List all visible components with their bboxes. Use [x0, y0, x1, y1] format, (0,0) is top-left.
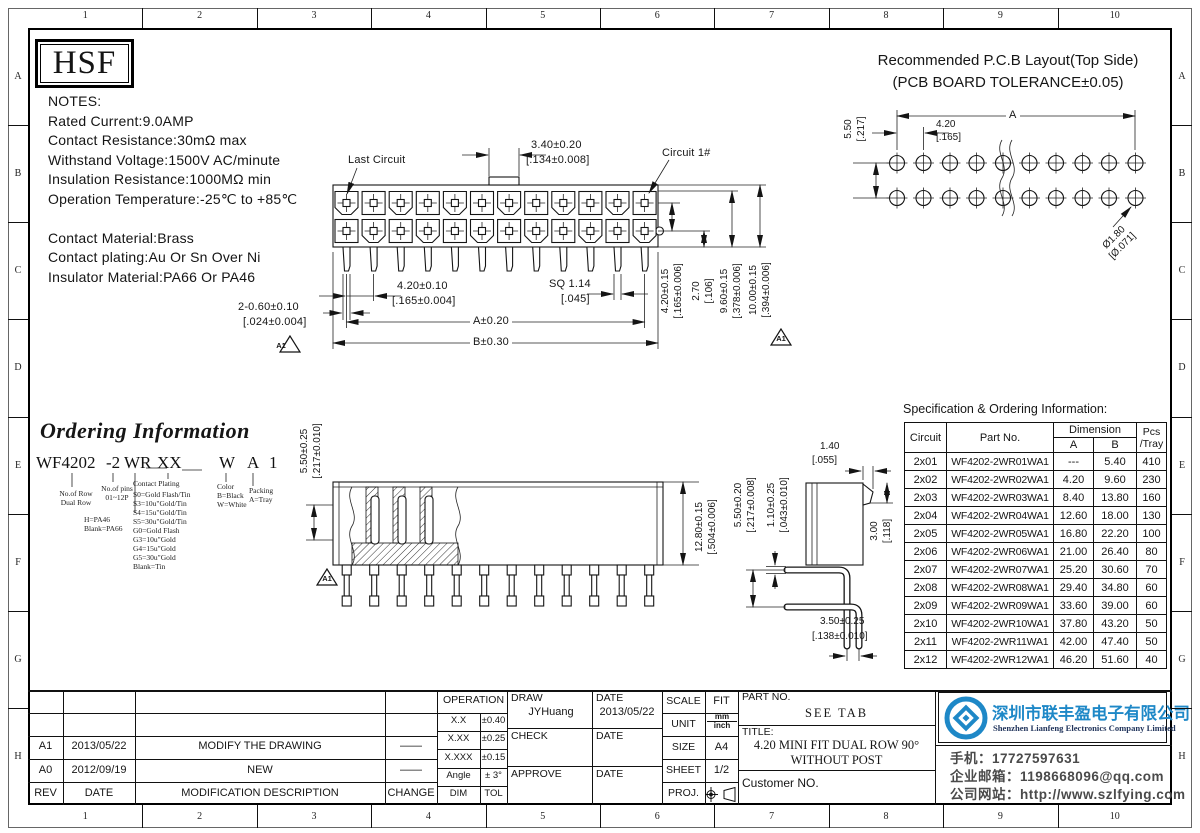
grid-tick — [829, 8, 830, 28]
spec-cell: 2x05 — [905, 525, 947, 543]
grid-tick — [8, 417, 28, 418]
customer-no-label: Customer NO. — [742, 776, 819, 790]
dim-text: 5.50±0.25 — [299, 410, 312, 492]
grid-tick — [486, 8, 487, 28]
grid-col-label: 3 — [257, 10, 371, 21]
grid-tick — [1172, 708, 1192, 709]
ordering-code-wr: WR — [124, 453, 151, 473]
dim-960-vertical: 9.60±0.15 [.378±0.006] — [719, 246, 744, 336]
dim-1000-vertical: 10.00±0.15 [.394±0.006] — [748, 242, 773, 338]
dim-row-spacing-vertical: 4.20±0.15 [.165±0.006] — [660, 246, 685, 336]
grid-tick — [486, 805, 487, 828]
dim-text: [.394±0.006] — [761, 242, 774, 338]
dim-text: [.378±0.006] — [732, 246, 745, 336]
title-block-line — [437, 786, 507, 787]
grid-col-label: 8 — [829, 10, 943, 21]
dim-sq: SQ 1.14 — [549, 278, 591, 290]
grid-tick — [8, 319, 28, 320]
revision-flag: A1 — [772, 334, 790, 343]
grid-row-label: B — [1172, 125, 1192, 222]
grid-tick — [8, 222, 28, 223]
ordering-code-series: WF4202 — [36, 453, 96, 473]
spec-cell: WF4202-2WR04WA1 — [947, 507, 1054, 525]
ordering-note-line: G5=30u"Gold — [133, 553, 191, 562]
pcb-title-line2: (PCB BOARD TOLERANCE±0.05) — [838, 74, 1178, 91]
title-block-line — [592, 690, 593, 805]
pcb-dim-pitch-inch: [.165] — [936, 132, 961, 143]
dim-text: 3.00 — [869, 505, 882, 557]
spec-cell: 60 — [1137, 579, 1167, 597]
dim-pitch-inch: [.165±0.004] — [392, 295, 456, 307]
label-circuit-1: Circuit 1# — [662, 147, 710, 159]
grid-row-label: C — [1172, 222, 1192, 319]
company-website: 公司网站：http://www.szlfying.com — [950, 783, 1186, 803]
ordering-note-line: Blank=PA66 — [84, 524, 123, 533]
title-block-line — [437, 768, 507, 769]
ordering-note-line: B=Black — [217, 491, 247, 500]
dim-text: 12.80±0.15 — [694, 480, 707, 574]
grid-tick — [1172, 319, 1192, 320]
grid-col-label: 6 — [600, 10, 714, 21]
grid-tick — [257, 805, 258, 828]
unit-label: UNIT — [663, 718, 704, 730]
spec-col-pcs: Pcs/Tray — [1137, 423, 1167, 453]
grid-col-label: 10 — [1058, 811, 1172, 822]
part-no-label: PART NO. — [742, 691, 790, 703]
note-line: Insulator Material:PA66 Or PA46 — [48, 268, 297, 288]
title-block-line — [738, 690, 740, 805]
note-line: NOTES: — [48, 92, 297, 112]
spec-col-dimension: Dimension — [1054, 423, 1137, 438]
spec-col-circuit: Circuit — [905, 423, 947, 453]
spec-cell: 22.20 — [1094, 525, 1137, 543]
dim-text: 4.20±0.15 — [660, 246, 673, 336]
grid-tick — [1172, 611, 1192, 612]
spec-cell: 2x07 — [905, 561, 947, 579]
spec-cell: WF4202-2WR05WA1 — [947, 525, 1054, 543]
spec-cell: 2x08 — [905, 579, 947, 597]
ordering-note-line: Blank=Tin — [133, 562, 191, 571]
spec-col-part: Part No. — [947, 423, 1054, 453]
spec-cell: 21.00 — [1054, 543, 1094, 561]
grid-col-label: 1 — [28, 811, 142, 822]
dim-text: [.217±0.010] — [312, 410, 325, 492]
dim-text: 9.60±0.15 — [719, 246, 732, 336]
spec-row: 2x06WF4202-2WR06WA121.0026.4080 — [905, 543, 1167, 561]
side-dim-top: 1.40 — [820, 441, 839, 452]
note-line: Rated Current:9.0AMP — [48, 112, 297, 132]
spec-cell: WF4202-2WR08WA1 — [947, 579, 1054, 597]
title-block-line — [437, 731, 507, 732]
ordering-code-rows: -2 — [106, 453, 120, 473]
title-block-line — [662, 713, 738, 714]
revision-flag: A1 — [318, 574, 336, 583]
grid-row-label: G — [8, 611, 28, 708]
spec-cell: WF4202-2WR02WA1 — [947, 471, 1054, 489]
unit-value: mm inch — [707, 713, 737, 730]
draw-label: DRAW — [511, 692, 543, 704]
grid-row-label: F — [8, 514, 28, 611]
title-block-line — [662, 759, 738, 760]
grid-col-label: 6 — [600, 811, 714, 822]
title-block-cell: —— — [385, 740, 437, 752]
title-block-line — [28, 736, 437, 737]
dim-text: [.217] — [856, 108, 869, 150]
title-block-cell: ±0.25 — [481, 733, 506, 744]
grid-tick — [714, 8, 715, 28]
dim-text: 1.10±0.25 — [766, 462, 779, 548]
spec-cell: 2x11 — [905, 633, 947, 651]
ordering-note-line: S5=30u"Gold/Tin — [133, 517, 191, 526]
spec-row: 2x03WF4202-2WR03WA18.4013.80160 — [905, 489, 1167, 507]
title-block-cell: 2013/05/22 — [63, 740, 135, 752]
title-block-line — [935, 690, 937, 805]
grid-row-label: H — [8, 708, 28, 805]
approve-date-label: DATE — [596, 768, 623, 780]
title-block-line — [738, 725, 935, 726]
revision-flag: A1 — [272, 341, 290, 350]
title-label: TITLE: — [742, 726, 774, 738]
spec-cell: 50 — [1137, 615, 1167, 633]
title-block-line — [437, 749, 507, 750]
side-dim-pin-width: 1.10±0.25 [.043±0.010] — [766, 462, 791, 548]
spec-cell: 2x03 — [905, 489, 947, 507]
ordering-note-line: S4=15u"Gold/Tin — [133, 508, 191, 517]
title-block-cell: DIM — [438, 788, 479, 799]
sheet-label: SHEET — [663, 764, 704, 776]
grid-tick — [1058, 8, 1059, 28]
dim-270-vertical: 2.70 [.106] — [691, 246, 716, 336]
spec-cell: 25.20 — [1054, 561, 1094, 579]
drawing-title-line1: 4.20 MINI FIT DUAL ROW 90° — [738, 738, 935, 753]
size-value: A4 — [705, 741, 738, 753]
grid-row-label: H — [1172, 708, 1192, 805]
spec-cell: WF4202-2WR03WA1 — [947, 489, 1054, 507]
spec-cell: 2x02 — [905, 471, 947, 489]
spec-cell: 47.40 — [1094, 633, 1137, 651]
grid-tick — [1172, 514, 1192, 515]
pcb-dim-row-spacing: 5.50 [.217] — [843, 108, 868, 150]
title-block-line — [935, 745, 1172, 746]
title-block-cell: ± 3° — [481, 770, 506, 781]
ordering-plating-title: Contact Plating — [133, 479, 179, 488]
title-block-line — [437, 713, 507, 714]
ordering-note-line: S3=10u"Gold/Tin — [133, 499, 191, 508]
ordering-rows-note: No.of RowDual Row — [52, 489, 100, 507]
ordering-packing-note: PackingA=Tray — [249, 486, 273, 504]
sheet-value: 1/2 — [705, 764, 738, 776]
spec-cell: 34.80 — [1094, 579, 1137, 597]
spec-cell: 46.20 — [1054, 651, 1094, 669]
spec-cell: 33.60 — [1054, 597, 1094, 615]
dim-text: 5.50 — [843, 108, 856, 150]
dim-text: 10.00±0.15 — [748, 242, 761, 338]
spec-cell: 16.80 — [1054, 525, 1094, 543]
note-line — [48, 209, 297, 229]
label-last-circuit: Last Circuit — [348, 154, 405, 166]
spec-cell: 410 — [1137, 453, 1167, 471]
grid-col-label: 4 — [371, 10, 485, 21]
part-no-value: SEE TAB — [738, 706, 935, 721]
spec-cell: 42.00 — [1054, 633, 1094, 651]
title-block-cell: A0 — [28, 764, 63, 776]
note-line: Operation Temperature:-25℃ to +85℃ — [48, 190, 297, 210]
title-block-cell: X.X — [438, 715, 479, 726]
title-block-cell: MODIFY THE DRAWING — [135, 740, 385, 752]
title-block-cell: MODIFICATION DESCRIPTION — [135, 787, 385, 799]
note-line: Withstand Voltage:1500V AC/minute — [48, 151, 297, 171]
dim-pitch: 4.20±0.10 — [397, 280, 448, 292]
grid-tick — [8, 125, 28, 126]
hsf-logo: HSF — [35, 39, 134, 88]
title-block-cell: REV — [28, 787, 63, 799]
dim-text: [.165±0.006] — [673, 246, 686, 336]
grid-row-label: F — [1172, 514, 1192, 611]
ordering-note-line: S0=Gold Flash/Tin — [133, 490, 191, 499]
title-block-line — [28, 782, 437, 783]
grid-col-label: 5 — [486, 10, 600, 21]
ordering-color-note: ColorB=BlackW=White — [214, 482, 247, 509]
spec-cell: 13.80 — [1094, 489, 1137, 507]
spec-cell: WF4202-2WR10WA1 — [947, 615, 1054, 633]
grid-col-label: 7 — [714, 811, 828, 822]
grid-tick — [257, 8, 258, 28]
size-label: SIZE — [663, 741, 704, 753]
drawing-title-line2: WITHOUT POST — [738, 753, 935, 768]
drawing-sheet: HSF NOTES:Rated Current:9.0AMPContact Re… — [0, 0, 1200, 833]
grid-row-label: A — [8, 28, 28, 125]
draw-date-label: DATE — [596, 692, 623, 704]
ordering-note-line: Dual Row — [52, 498, 100, 507]
dim-a: A±0.20 — [470, 315, 512, 327]
grid-col-label: 7 — [714, 10, 828, 21]
ordering-note-line: G4=15u"Gold — [133, 544, 191, 553]
ordering-plating-options: S0=Gold Flash/TinS3=10u"Gold/TinS4=15u"G… — [133, 490, 191, 571]
grid-tick — [829, 805, 830, 828]
spec-cell: WF4202-2WR01WA1 — [947, 453, 1054, 471]
grid-row-label: G — [1172, 611, 1192, 708]
spec-cell: 43.20 — [1094, 615, 1137, 633]
ordering-note-line: G3=10u"Gold — [133, 535, 191, 544]
check-label: CHECK — [511, 730, 548, 742]
title-block-cell: —— — [385, 764, 437, 776]
spec-cell: 8.40 — [1054, 489, 1094, 507]
dim-text: [.217±0.008] — [746, 462, 759, 548]
side-dim-pin-spacing: 5.50±0.20 [.217±0.008] — [733, 462, 758, 548]
side-dim-latch: 3.00 [.118] — [869, 505, 894, 557]
dim-text: [.043±0.010] — [779, 462, 792, 548]
section-dim-height: 5.50±0.25 [.217±0.010] — [299, 410, 324, 492]
ordering-code-packing: A — [247, 453, 259, 473]
spec-cell: WF4202-2WR11WA1 — [947, 633, 1054, 651]
grid-tick — [142, 8, 143, 28]
ordering-note-line: No.of Row — [52, 489, 100, 498]
spec-cell: 37.80 — [1054, 615, 1094, 633]
unit-inch: inch — [707, 721, 737, 730]
notes-block: NOTES:Rated Current:9.0AMPContact Resist… — [48, 92, 297, 287]
grid-row-label: E — [1172, 417, 1192, 514]
ordering-code-color: W — [219, 453, 235, 473]
grid-tick — [600, 805, 601, 828]
title-block-line — [662, 690, 663, 805]
operation-title: OPERATION — [440, 694, 507, 706]
grid-row-label: B — [8, 125, 28, 222]
grid-col-label: 3 — [257, 811, 371, 822]
ordering-note-line: H=PA46 — [84, 515, 123, 524]
spec-cell: 230 — [1137, 471, 1167, 489]
dim-tab-inch: [.134±0.008] — [526, 154, 590, 166]
title-block-cell: ±0.15 — [481, 752, 506, 763]
grid-tick — [1172, 222, 1192, 223]
spec-cell: --- — [1054, 453, 1094, 471]
grid-tick — [1172, 417, 1192, 418]
grid-tick — [8, 708, 28, 709]
company-logo-icon — [944, 695, 988, 741]
spec-cell: 2x12 — [905, 651, 947, 669]
draw-name: JYHuang — [510, 706, 592, 718]
grid-tick — [142, 805, 143, 828]
spec-cell: 2x01 — [905, 453, 947, 471]
spec-cell: WF4202-2WR09WA1 — [947, 597, 1054, 615]
spec-cell: WF4202-2WR12WA1 — [947, 651, 1054, 669]
approve-label: APPROVE — [511, 768, 562, 780]
spec-row: 2x09WF4202-2WR09WA133.6039.0060 — [905, 597, 1167, 615]
note-line: Insulation Resistance:1000MΩ min — [48, 170, 297, 190]
title-block-line — [662, 736, 738, 737]
spec-cell: 18.00 — [1094, 507, 1137, 525]
title-block-cell: CHANGE — [385, 787, 437, 799]
grid-col-label: 9 — [943, 811, 1057, 822]
title-block-line — [507, 690, 508, 805]
grid-tick — [600, 8, 601, 28]
title-block-cell: X.XX — [438, 733, 479, 744]
ordering-code-1: 1 — [269, 453, 278, 473]
spec-cell: 2x04 — [905, 507, 947, 525]
spec-col-b: B — [1094, 438, 1137, 453]
note-line: Contact plating:Au Or Sn Over Ni — [48, 248, 297, 268]
ordering-note-line: A=Tray — [249, 495, 273, 504]
grid-row-label: D — [1172, 319, 1192, 416]
title-block-cell: ±0.40 — [481, 715, 506, 726]
dim-text: 5.50±0.20 — [733, 462, 746, 548]
grid-tick — [8, 611, 28, 612]
grid-col-label: 2 — [142, 811, 256, 822]
grid-col-label: 5 — [486, 811, 600, 822]
dim-sq-inch: [.045] — [561, 293, 590, 305]
spec-cell: 50 — [1137, 633, 1167, 651]
title-block-cell: NEW — [135, 764, 385, 776]
company-phone: 手机：17727597631 — [950, 747, 1080, 767]
title-block-cell: Angle — [438, 770, 479, 781]
spec-row: 2x08WF4202-2WR08WA129.4034.8060 — [905, 579, 1167, 597]
spec-col-a: A — [1054, 438, 1094, 453]
spec-row: 2x02WF4202-2WR02WA14.209.60230 — [905, 471, 1167, 489]
spec-row: 2x10WF4202-2WR10WA137.8043.2050 — [905, 615, 1167, 633]
draw-date: 2013/05/22 — [594, 706, 660, 718]
projection-label: PROJ. — [663, 787, 704, 799]
spec-cell: 30.60 — [1094, 561, 1137, 579]
spec-row: 2x04WF4202-2WR04WA112.6018.00130 — [905, 507, 1167, 525]
ordering-title: Ordering Information — [40, 418, 250, 444]
spec-cell: 40 — [1137, 651, 1167, 669]
title-block-cell: A1 — [28, 740, 63, 752]
grid-col-label: 4 — [371, 811, 485, 822]
hsf-logo-text: HSF — [40, 44, 129, 83]
spec-cell: WF4202-2WR07WA1 — [947, 561, 1054, 579]
spec-cell: 9.60 — [1094, 471, 1137, 489]
spec-cell: 51.60 — [1094, 651, 1137, 669]
check-date-label: DATE — [596, 730, 623, 742]
dim-pin-width-inch: [.024±0.004] — [243, 316, 307, 328]
grid-col-label: 10 — [1058, 10, 1172, 21]
side-dim-bottom-inch: [.138±0.010] — [812, 631, 868, 642]
ordering-note-line: No.of pins — [96, 484, 138, 493]
dim-text: 2.70 — [691, 246, 704, 336]
spec-col-pcs-2: /Tray — [1140, 438, 1164, 450]
spec-cell: 80 — [1137, 543, 1167, 561]
dim-tab: 3.40±0.20 — [531, 139, 582, 151]
note-line: Contact Material:Brass — [48, 229, 297, 249]
grid-row-label: A — [1172, 28, 1192, 125]
pcb-dim-a: A — [1006, 109, 1020, 121]
title-block-line — [28, 759, 437, 760]
grid-tick — [8, 514, 28, 515]
dim-pin-width: 2-0.60±0.10 — [238, 301, 299, 313]
grid-row-label: C — [8, 222, 28, 319]
dim-text: [.106] — [704, 246, 717, 336]
pcb-dim-pitch: 4.20 — [936, 119, 955, 130]
title-block-cell: X.XXX — [438, 752, 479, 763]
grid-tick — [943, 8, 944, 28]
section-dim-width: 12.80±0.15 [.504±0.006] — [694, 480, 719, 574]
grid-row-label: E — [8, 417, 28, 514]
company-email: 企业邮箱：1198668096@qq.com — [950, 765, 1164, 785]
title-block-line — [28, 690, 1172, 692]
spec-cell: 29.40 — [1054, 579, 1094, 597]
spec-row: 2x11WF4202-2WR11WA142.0047.4050 — [905, 633, 1167, 651]
spec-cell: 60 — [1137, 597, 1167, 615]
title-block-line — [507, 766, 662, 767]
grid-row-label: D — [8, 319, 28, 416]
spec-cell: 2x10 — [905, 615, 947, 633]
side-dim-top-inch: [.055] — [812, 455, 837, 466]
spec-table: Circuit Part No. Dimension Pcs/Tray A B … — [904, 422, 1167, 669]
spec-row: 2x07WF4202-2WR07WA125.2030.6070 — [905, 561, 1167, 579]
title-block-cell: TOL — [481, 788, 506, 799]
grid-tick — [1172, 125, 1192, 126]
title-block-line — [28, 713, 437, 714]
grid-tick — [371, 805, 372, 828]
spec-col-pcs-1: Pcs — [1143, 426, 1161, 438]
ordering-note-line: G0=Gold Flash — [133, 526, 191, 535]
spec-cell: 26.40 — [1094, 543, 1137, 561]
company-name-en: Shenzhen Lianfeng Electronics Company Li… — [993, 723, 1176, 733]
dim-b: B±0.30 — [470, 336, 512, 348]
title-block-line — [507, 728, 662, 729]
spec-cell: WF4202-2WR06WA1 — [947, 543, 1054, 561]
note-line: Contact Resistance:30mΩ max — [48, 131, 297, 151]
title-block-cell: DATE — [63, 787, 135, 799]
spec-cell: 100 — [1137, 525, 1167, 543]
spec-cell: 160 — [1137, 489, 1167, 507]
spec-row: 2x12WF4202-2WR12WA146.2051.6040 — [905, 651, 1167, 669]
ordering-note-line: W=White — [217, 500, 247, 509]
grid-col-label: 8 — [829, 811, 943, 822]
ordering-material-note: H=PA46Blank=PA66 — [84, 515, 123, 533]
grid-col-label: 2 — [142, 10, 256, 21]
spec-row: 2x01WF4202-2WR01WA1---5.40410 — [905, 453, 1167, 471]
ordering-note-line: Color — [217, 482, 247, 491]
